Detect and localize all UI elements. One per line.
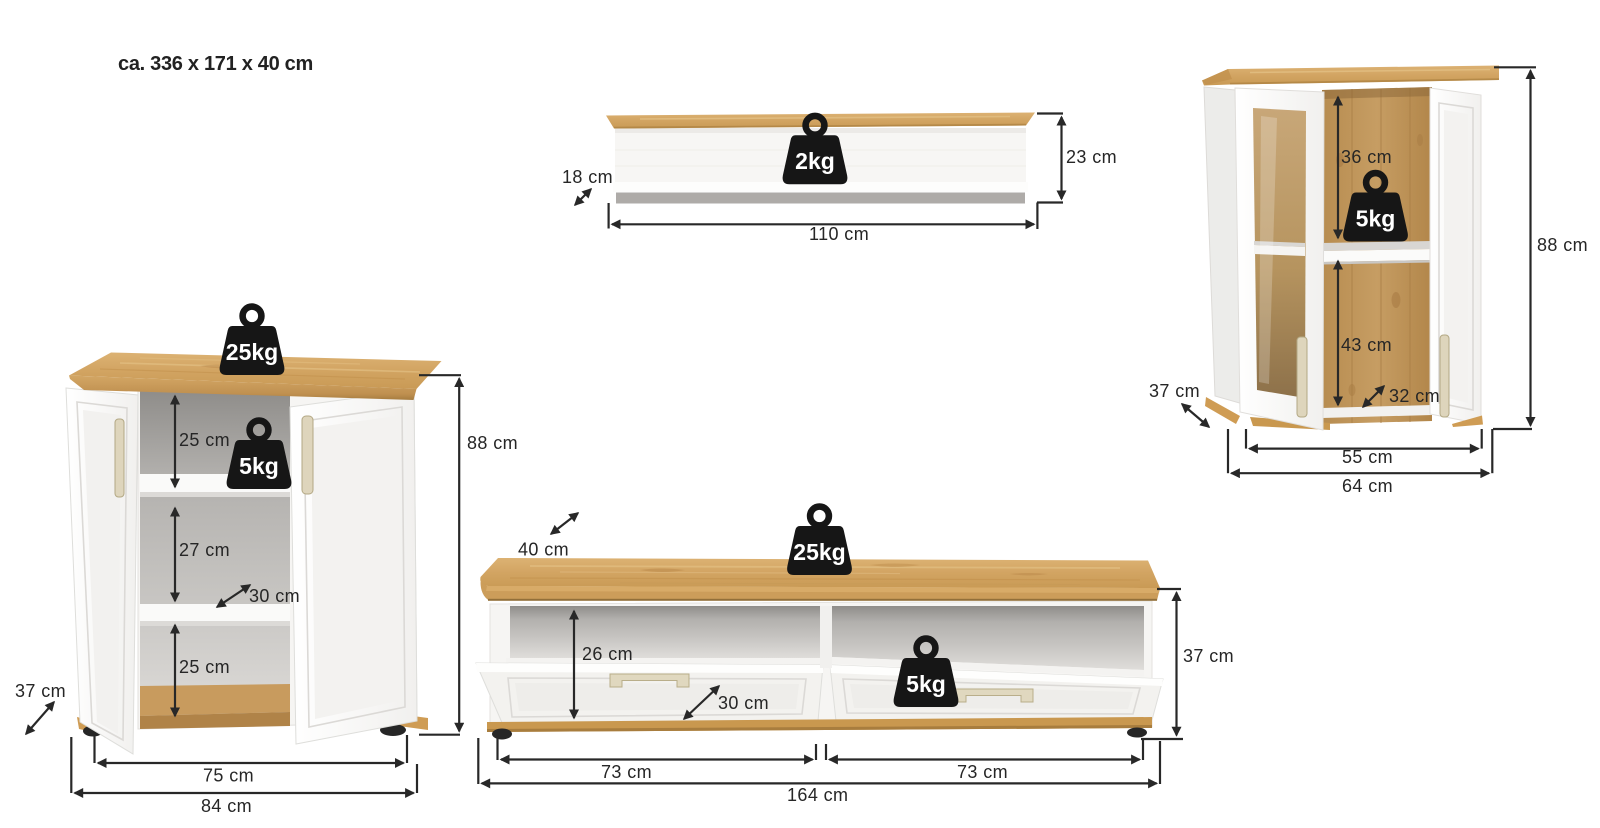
svg-text:2kg: 2kg <box>795 148 835 174</box>
svg-text:43 cm: 43 cm <box>1341 335 1392 355</box>
svg-text:36 cm: 36 cm <box>1341 147 1392 167</box>
svg-text:27 cm: 27 cm <box>179 540 230 560</box>
svg-text:23 cm: 23 cm <box>1066 147 1117 167</box>
svg-text:37 cm: 37 cm <box>1183 646 1234 666</box>
svg-text:55 cm: 55 cm <box>1342 447 1393 467</box>
svg-text:37 cm: 37 cm <box>15 681 66 701</box>
svg-text:25kg: 25kg <box>793 539 845 565</box>
svg-text:73 cm: 73 cm <box>601 762 652 782</box>
svg-text:26 cm: 26 cm <box>582 644 633 664</box>
svg-text:40 cm: 40 cm <box>518 540 569 560</box>
svg-text:84 cm: 84 cm <box>201 796 252 816</box>
svg-text:5kg: 5kg <box>1356 206 1396 232</box>
svg-text:64 cm: 64 cm <box>1342 476 1393 496</box>
svg-text:164 cm: 164 cm <box>787 785 848 805</box>
svg-text:5kg: 5kg <box>906 671 946 697</box>
svg-text:25 cm: 25 cm <box>179 430 230 450</box>
svg-text:110 cm: 110 cm <box>809 224 869 244</box>
svg-text:25 cm: 25 cm <box>179 657 230 677</box>
svg-text:75 cm: 75 cm <box>203 766 254 786</box>
svg-text:30 cm: 30 cm <box>249 586 300 606</box>
svg-text:ca. 336 x 171 x 40 cm: ca. 336 x 171 x 40 cm <box>118 53 313 75</box>
svg-text:32 cm: 32 cm <box>1389 386 1440 406</box>
svg-text:5kg: 5kg <box>239 453 279 479</box>
svg-text:88 cm: 88 cm <box>467 433 518 453</box>
svg-text:88 cm: 88 cm <box>1537 235 1588 255</box>
svg-text:30 cm: 30 cm <box>718 693 769 713</box>
svg-text:37 cm: 37 cm <box>1149 381 1200 401</box>
svg-text:18 cm: 18 cm <box>562 167 613 187</box>
svg-text:25kg: 25kg <box>226 339 278 365</box>
svg-text:73 cm: 73 cm <box>957 762 1008 782</box>
